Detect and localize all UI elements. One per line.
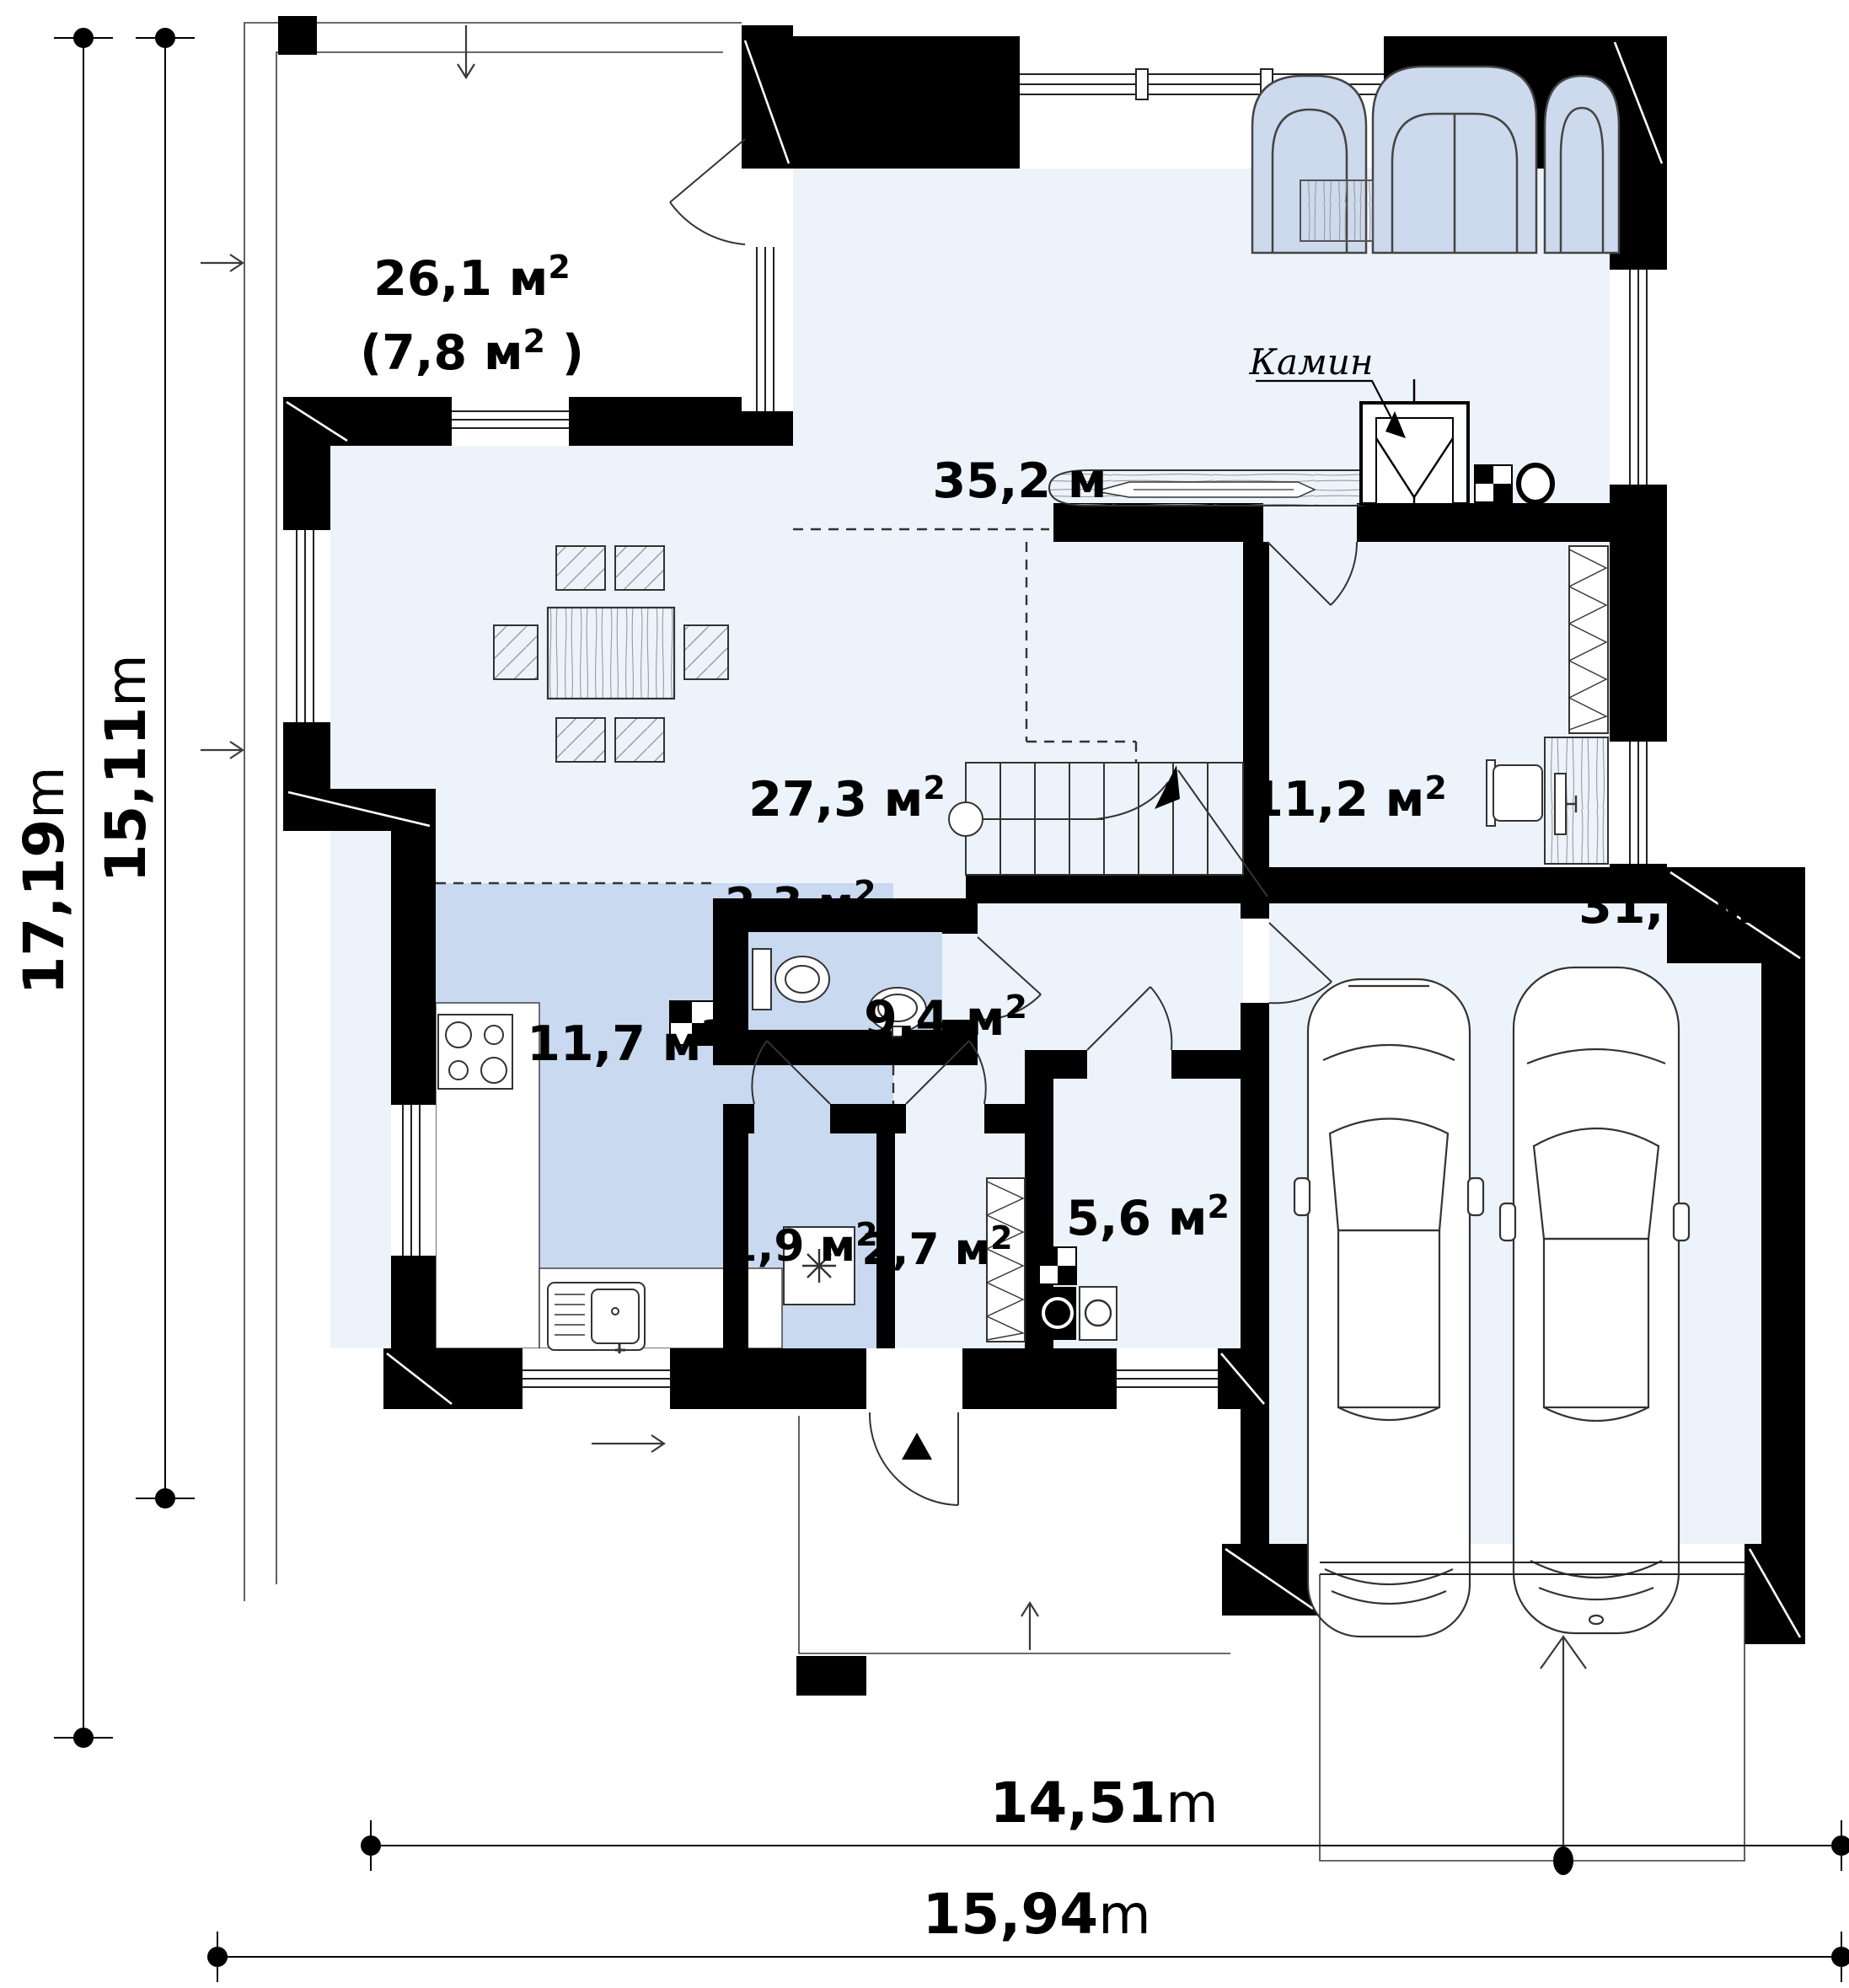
dim-bottom-outer: 15,94m (922, 1882, 1150, 1947)
storage-small-area-label: 1,9 м2 (726, 1216, 877, 1272)
storage-wardrobe (987, 1178, 1025, 1342)
dining-table (548, 608, 674, 699)
window-terrace-dining (452, 397, 569, 446)
door-entry (870, 1412, 958, 1505)
entry-porch (799, 1416, 1230, 1653)
floor-plan-drawing: 26,1 м2 (7,8 м2 ) 35,2 м 27,3 м2 11,2 м2… (0, 0, 1849, 1988)
terrace-area-label: 26,1 м2 (373, 249, 571, 307)
monitor (1555, 774, 1566, 834)
utility-area-label: 5,6 м2 (1066, 1188, 1230, 1246)
car-suv (1294, 979, 1483, 1637)
arrow-down-icon (458, 25, 474, 78)
arrow-right-icon (201, 742, 243, 758)
arrow-right-icon (592, 1435, 664, 1452)
chair (494, 625, 538, 679)
chair (615, 718, 664, 762)
living-area-label: 35,2 м (932, 453, 1107, 509)
dim-left-outer: 17,19m (12, 766, 77, 994)
driveway-arrow-icon (1541, 1637, 1586, 1850)
wc-area-label: 2,3 м2 (725, 874, 876, 930)
desk-chair (1493, 765, 1542, 821)
door-terrace (670, 139, 745, 244)
window-utility-bottom (1117, 1348, 1218, 1409)
floor-plan-page: 26,1 м2 (7,8 м2 ) 35,2 м 27,3 м2 11,2 м2… (0, 0, 1849, 1988)
garage-area-label: 31,2 м2 (1578, 876, 1776, 935)
chair (615, 546, 664, 590)
wardrobe (1569, 546, 1608, 733)
kitchen-sink (548, 1283, 645, 1353)
kitchen-area-label: 11,7 м2 (527, 1014, 724, 1072)
dim-bottom-inner: 14,51m (989, 1771, 1218, 1835)
window-kitchen-bottom (523, 1348, 670, 1409)
tv-unit (1300, 180, 1373, 241)
window-dining-left (283, 530, 330, 722)
chair (684, 625, 728, 679)
window-office-right (1610, 742, 1667, 864)
window-living-left (742, 247, 793, 411)
terrace-covered-area-label: (7,8 м2 ) (360, 323, 584, 381)
stove (438, 1015, 512, 1089)
chair (556, 718, 605, 762)
car-sedan (1500, 967, 1689, 1633)
office-area-label: 11,2 м2 (1250, 769, 1447, 828)
chair (556, 546, 605, 590)
storage-area-label: 2,7 м2 (861, 1219, 1012, 1275)
arrow-right-icon (201, 255, 243, 271)
hall-area-label: 9,4 м2 (864, 989, 1027, 1047)
window-living-right (1610, 270, 1667, 485)
dining-area-label: 27,3 м2 (748, 769, 946, 828)
arrow-up-icon (1021, 1603, 1038, 1650)
dim-left-inner: 15,11m (94, 654, 158, 882)
fireplace-text-label: Камин (1248, 341, 1373, 383)
terrace-column (278, 16, 317, 55)
window-kitchen-left (391, 1105, 436, 1256)
entry-arrow-icon (902, 1433, 932, 1460)
driveway-dot (1553, 1846, 1573, 1875)
